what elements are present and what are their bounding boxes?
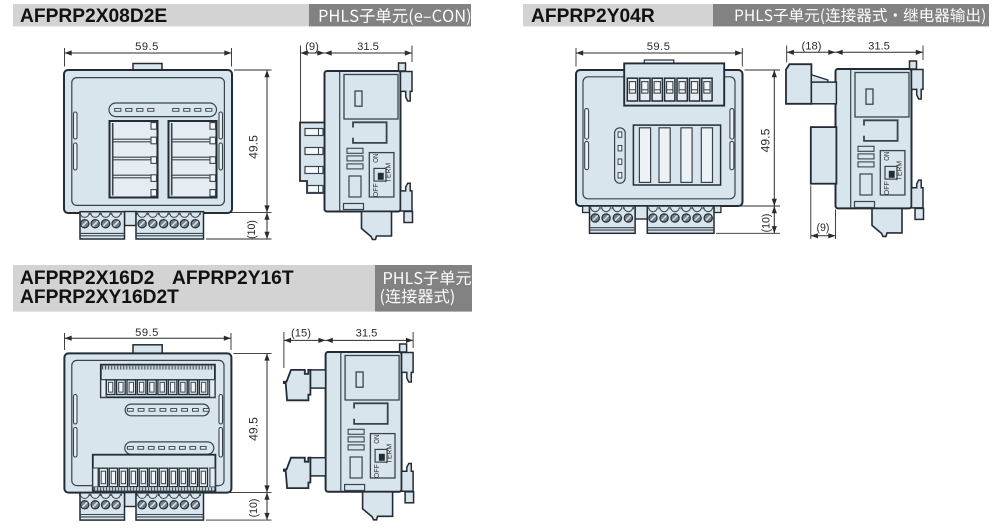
svg-text:(10): (10): [761, 214, 773, 233]
svg-text:(10): (10): [248, 499, 260, 518]
svg-text:TERM: TERM: [384, 163, 393, 183]
svg-text:(18): (18): [802, 40, 822, 52]
svg-text:49.5: 49.5: [758, 128, 772, 152]
svg-text:59.5: 59.5: [135, 327, 159, 339]
svg-text:AFPRP2X08D2E: AFPRP2X08D2E: [20, 6, 167, 27]
svg-text:TERM: TERM: [895, 161, 904, 181]
svg-text:31.5: 31.5: [868, 40, 890, 52]
svg-text:OFF: OFF: [371, 183, 380, 198]
svg-text:AFPRP2Y04R: AFPRP2Y04R: [531, 6, 655, 27]
svg-text:(15): (15): [291, 328, 311, 340]
svg-text:ON: ON: [882, 152, 891, 161]
svg-text:49.5: 49.5: [247, 135, 261, 159]
svg-text:ON: ON: [371, 154, 380, 163]
svg-text:59.5: 59.5: [647, 41, 671, 53]
svg-text:(9): (9): [305, 41, 319, 53]
svg-text:AFPRP2XY16D2T: AFPRP2XY16D2T: [20, 287, 179, 308]
svg-text:(9): (9): [817, 222, 830, 234]
svg-text:OFF: OFF: [372, 464, 381, 479]
svg-text:49.5: 49.5: [247, 417, 261, 441]
svg-text:TERM: TERM: [385, 444, 394, 464]
svg-text:OFF: OFF: [882, 181, 891, 196]
svg-text:31.5: 31.5: [357, 41, 379, 53]
svg-text:31.5: 31.5: [356, 328, 378, 340]
svg-text:ON: ON: [372, 435, 381, 444]
svg-text:59.5: 59.5: [135, 41, 159, 53]
svg-text:(10): (10): [246, 220, 258, 239]
svg-text:AFPRP2Y16T: AFPRP2Y16T: [172, 268, 294, 289]
